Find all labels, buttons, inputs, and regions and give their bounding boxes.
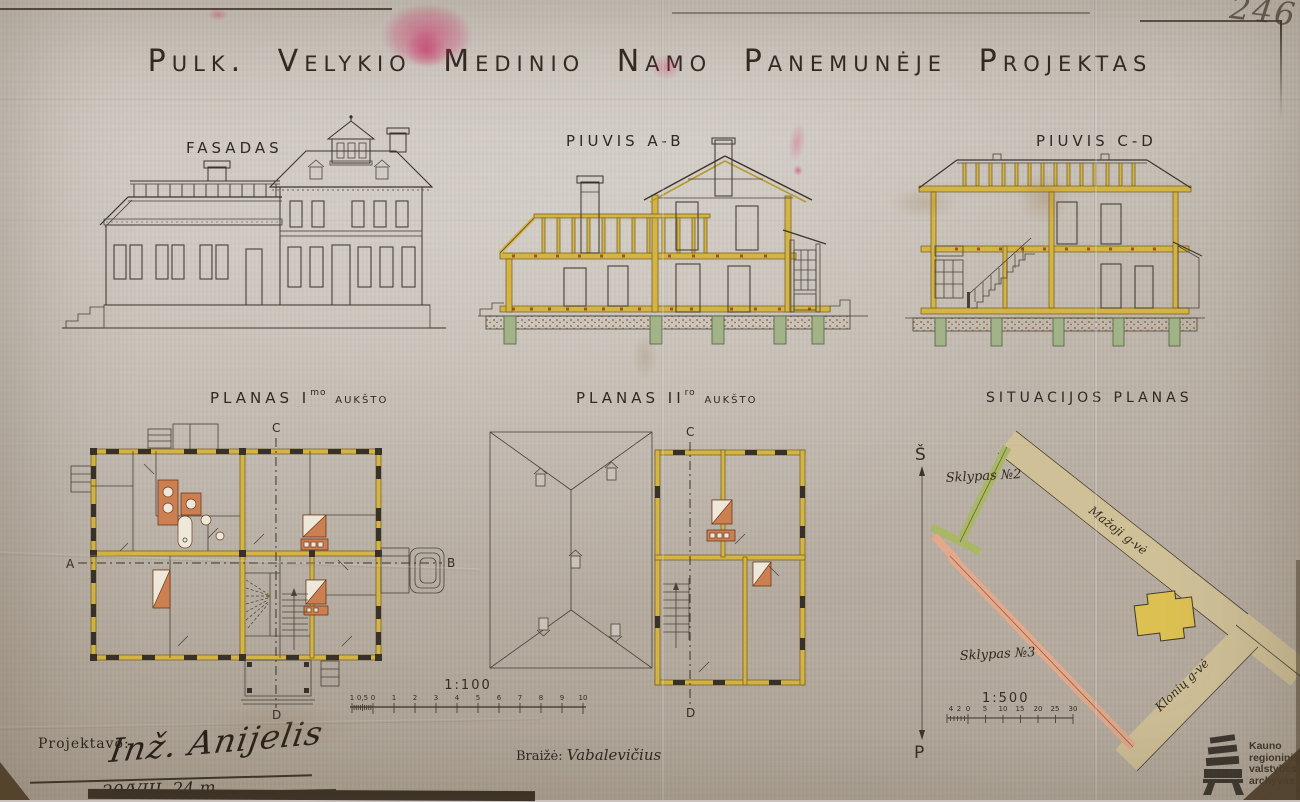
s500-tick: 0 (966, 705, 970, 713)
facade-ground (62, 305, 446, 328)
facade-chimney-right (387, 128, 409, 152)
label-planas-2-sup: ro (685, 388, 696, 398)
s100-tick: 1 (392, 694, 396, 702)
facade-left-windows (114, 245, 262, 305)
scale-bar-100: 1:100 1 0,5 0 1 2 3 4 5 6 7 8 9 10 (338, 676, 600, 718)
site-plot-boundaries (932, 447, 1133, 747)
site-scale-bar-500: 1:500 4 2 0 5 10 15 20 25 30 (947, 691, 1077, 724)
scale-100-label: 1:100 (444, 678, 491, 693)
site-building-footprint (1133, 589, 1196, 644)
south-marker: P (914, 743, 924, 763)
s100-tick: 10 (579, 694, 588, 702)
section-cd-ground (905, 318, 1205, 346)
stove-bottom-right (304, 580, 328, 615)
s500-tick: 20 (1034, 705, 1043, 713)
drawn-by-label: Braižė: (516, 749, 563, 764)
s100-tick: 5 (476, 694, 480, 702)
s100-tick: 7 (518, 694, 522, 702)
s100-tick: 3 (434, 694, 438, 702)
facade-left-wing (100, 161, 282, 305)
scanned-architectural-drawing: { "page": { "corner_number": "246", "tit… (0, 0, 1300, 800)
plan1-bay-and-porch-right (381, 548, 444, 593)
facade-right-block (270, 115, 432, 305)
drawn-by-block: Braižė: Vabalevičius (516, 746, 661, 764)
section-ab-doors-upper (676, 202, 758, 250)
s500-tick: 30 (1069, 705, 1078, 713)
facade-roof-deck-railing (130, 181, 280, 197)
s500-tick: 4 (949, 705, 954, 713)
facade-chimney-left (204, 161, 230, 181)
label-planas-1-sup: mo (310, 388, 326, 398)
plan2-stoves (707, 500, 771, 586)
paper-crease (0, 97, 1300, 100)
scan-edge-right (1296, 560, 1300, 800)
north-marker: Š (915, 443, 926, 465)
section-ab-chimney-right (712, 138, 735, 196)
handwritten-folio-number: 246 (1228, 0, 1299, 34)
s500-tick: 15 (1016, 705, 1025, 713)
plan2-floor-walls (655, 450, 805, 685)
archive-logo-icon (1203, 733, 1245, 795)
plan2-windows (655, 450, 805, 685)
facade-tower (328, 115, 374, 165)
s100-tick: 8 (539, 694, 543, 702)
s500-tick: 2 (957, 705, 961, 713)
label-planas-1-main: PLANAS I (210, 389, 310, 407)
marker-a: A (66, 557, 75, 571)
marker-d2: D (686, 706, 695, 720)
s100-tick: 1 (350, 694, 354, 702)
sheet-border-top-right (1140, 20, 1282, 22)
facade-hip-roof (270, 151, 432, 190)
drawing-site-plan: Š P Sklypas №2 Sklypas №3 Mažoji g-vė Kl… (898, 412, 1300, 762)
plot2-label: Sklypas №2 (945, 467, 1021, 486)
drawing-plan-first-floor: A B C D (58, 418, 463, 720)
scale-100-ticks (352, 703, 583, 714)
plan2-section-line: C D (686, 425, 695, 720)
section-ab-gable-roof (644, 156, 812, 202)
s100-tick: 4 (455, 694, 460, 702)
sheet-border-top-middle (672, 12, 1090, 14)
scale-100-numbers: 1 0,5 0 1 2 3 4 5 6 7 8 9 10 (350, 694, 588, 702)
section-cd-roof (919, 154, 1191, 192)
s100-tick: 0,5 (357, 694, 368, 702)
plan1-stoop-bottom-right (321, 661, 339, 686)
stove-top-right (301, 515, 328, 550)
drawing-section-ab (478, 138, 868, 353)
drawing-section-cd (905, 146, 1205, 353)
sheet-border-right (1280, 20, 1282, 120)
plan1-outer-walls (91, 449, 381, 660)
s500-tick: 10 (999, 705, 1008, 713)
draftsman-signature: Vabalevičius (567, 746, 661, 764)
label-planas-2-suffix: AUKŠTO (704, 395, 757, 406)
section-cd-veranda-left (935, 246, 963, 298)
sheet-border-top-left (0, 8, 392, 10)
plan1-staircases (246, 580, 308, 650)
section-ab-roof-terrace (500, 214, 710, 253)
s100-tick: 0 (371, 694, 375, 702)
section-ab-floors (500, 253, 830, 312)
s100-tick: 6 (497, 694, 502, 702)
stove-bottom-left (153, 570, 170, 608)
facade-lower-windows (288, 245, 415, 305)
marker-c: C (272, 421, 280, 435)
s500-tick: 25 (1051, 705, 1060, 713)
label-planas-2: PLANAS IIro AUKŠTO (576, 388, 757, 407)
plan1-kitchen-fixtures (158, 480, 224, 548)
facade-dormer (374, 160, 390, 179)
facade-upper-windows (290, 201, 408, 227)
archive-stamp-line: Kauno (1249, 741, 1299, 753)
plan2-staircase (663, 578, 689, 648)
scale-500-label: 1:500 (982, 691, 1029, 706)
s500-tick: 5 (983, 705, 987, 713)
page-title: Pulk. Velykio Medinio Namo Panemunėje Pr… (140, 44, 1160, 79)
label-planas-1: PLANAS Imo AUKŠTO (210, 388, 388, 407)
plan2-roof-plan (490, 432, 652, 668)
facade-dormer (308, 160, 324, 179)
drawing-plan-second-floor: C D (483, 426, 815, 718)
marker-c2: C (686, 425, 694, 439)
label-planas-2-main: PLANAS II (576, 389, 685, 407)
plot3-label: Sklypas №3 (959, 645, 1035, 664)
label-planas-1-suffix: AUKŠTO (335, 395, 388, 406)
label-situacijos-planas: SITUACIJOS PLANAS (986, 390, 1193, 406)
site-north-arrow: Š P (914, 443, 926, 763)
drawing-facade-elevation (60, 115, 450, 337)
s100-tick: 2 (413, 694, 417, 702)
scan-edge-bottom-left (0, 762, 30, 800)
plan1-entry-porch-bottom (241, 660, 315, 704)
s100-tick: 9 (560, 694, 564, 702)
section-cd-doors (1057, 202, 1153, 308)
